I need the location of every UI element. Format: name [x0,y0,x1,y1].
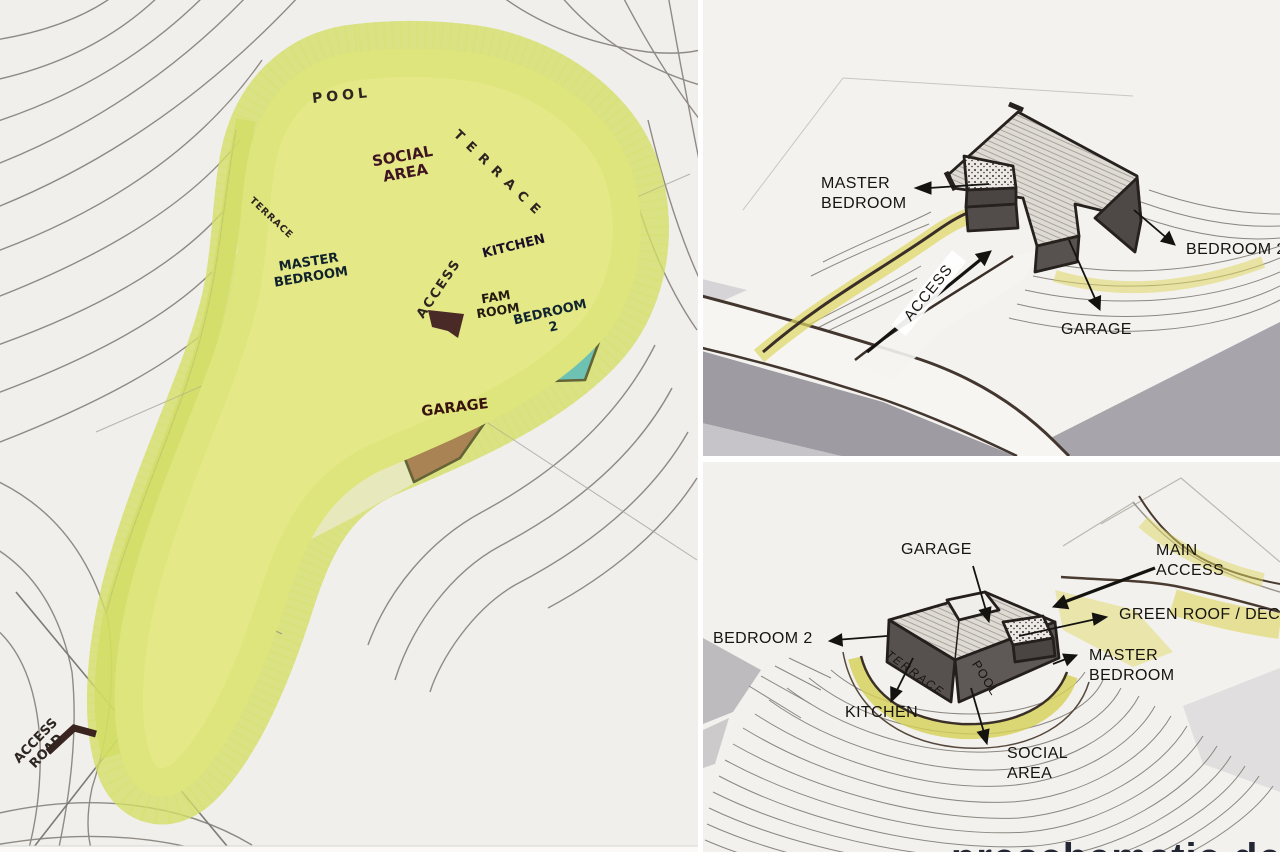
caption-text: preschematic design [951,836,1280,852]
persp2-label-garage: GARAGE [901,540,972,560]
persp2-label-green-roof-deck: GREEN ROOF / DECK [1119,605,1280,625]
perspective-top-sketch [703,0,1280,456]
persp1-label-bedroom-2: BEDROOM 2 [1186,240,1280,260]
persp2-label-social-area: SOCIAL AREA [1007,744,1071,783]
green-roof-front [966,188,1016,207]
persp1-label-garage: GARAGE [1061,320,1132,340]
persp2-label-bedroom-2: BEDROOM 2 [713,629,813,649]
perspective-bottom-panel: GARAGE MAIN ACCESS GREEN ROOF / DECK BED… [703,462,1280,852]
persp2-label-master-bedroom: MASTER BEDROOM [1089,646,1179,685]
persp1-label-master-bedroom: MASTER BEDROOM [821,174,911,213]
perspective-bottom-sketch [703,462,1280,852]
site-plan-panel: POOL TERRACE TERRACE SOCIAL AREA MASTER … [0,0,698,852]
persp2-label-kitchen: KITCHEN [845,703,918,723]
paper-edge [0,846,698,852]
persp2-label-main-access: MAIN ACCESS [1156,541,1230,580]
site-plan-sketch [0,0,698,852]
perspective-top-panel: MASTER BEDROOM BEDROOM 2 GARAGE ACCESS [703,0,1280,456]
building-wall-left-wing [966,204,1018,231]
